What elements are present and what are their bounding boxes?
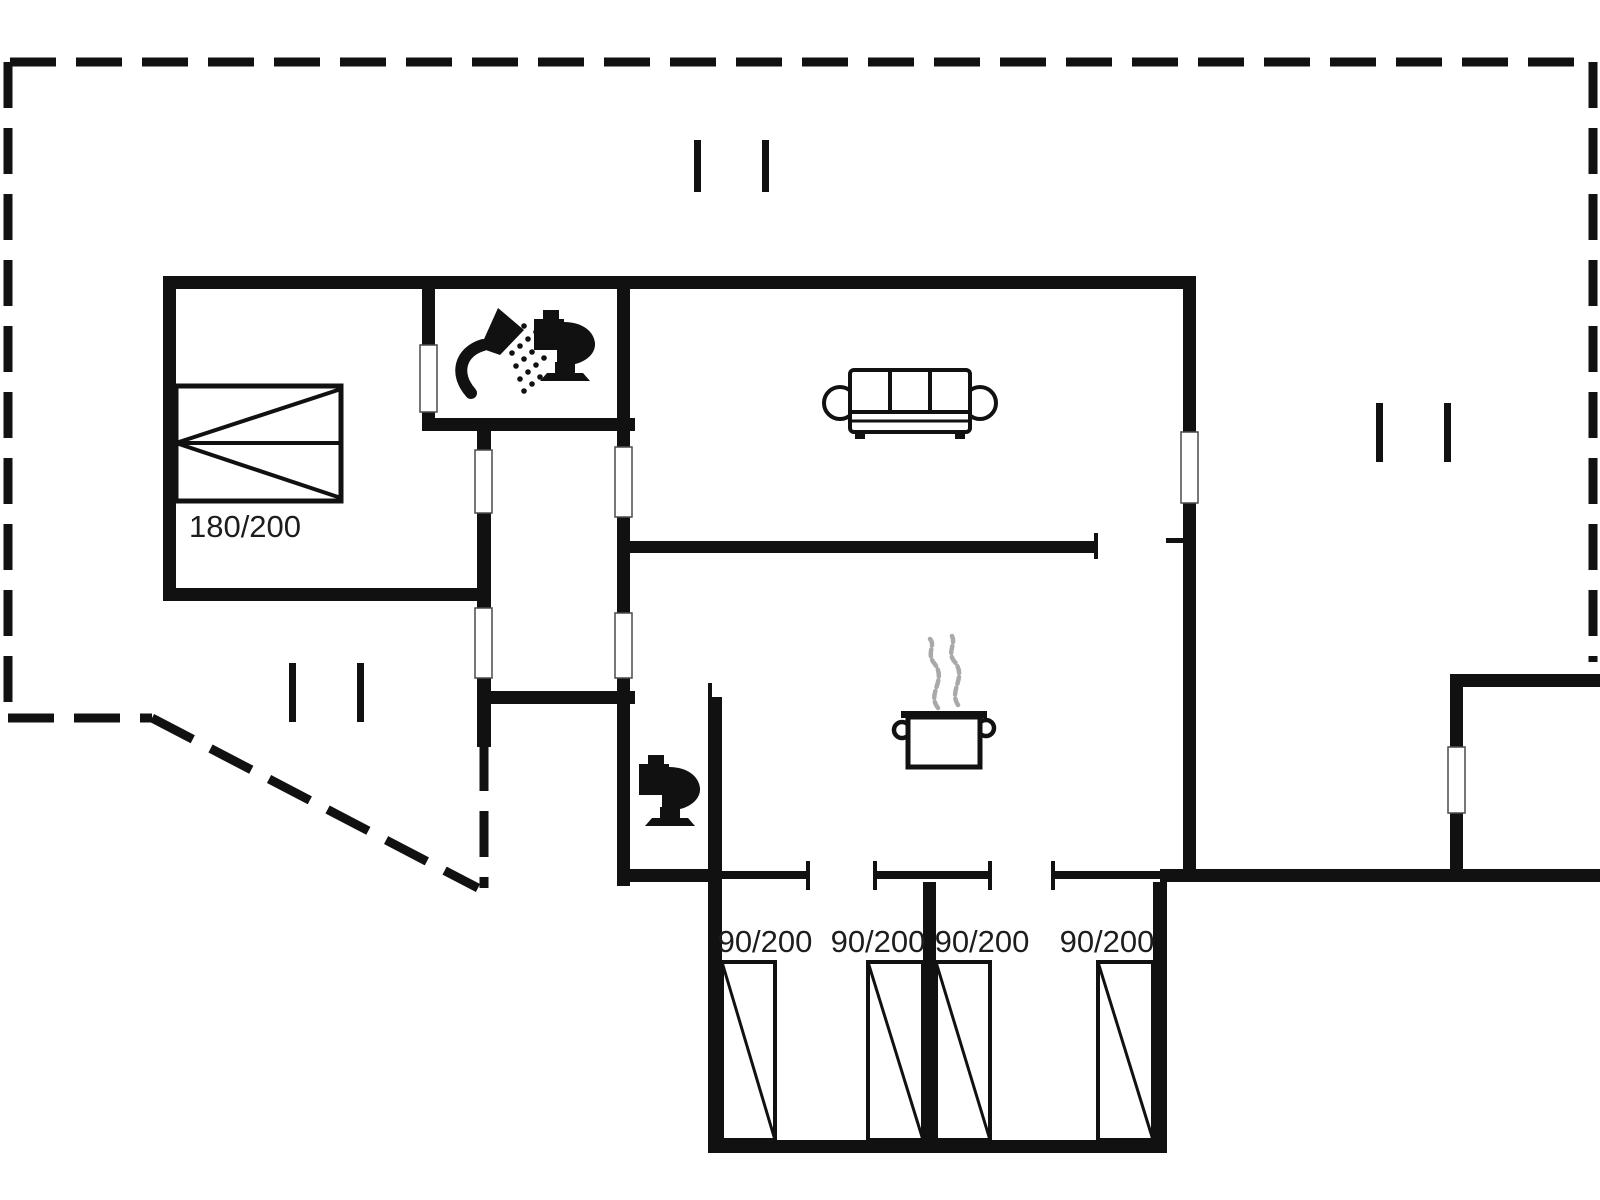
south-wall-thick-east: [1160, 869, 1600, 882]
bedroom-door: [475, 450, 492, 513]
opening-mark-left-1: [289, 663, 296, 722]
annex-window: [1448, 747, 1465, 813]
boundary-diagonal: [152, 718, 478, 888]
single-bed-size-label-1: 90/200: [718, 924, 813, 959]
single-bed-size-label-2: 90/200: [831, 924, 926, 959]
bathroom-west-wall-upper: [422, 276, 435, 348]
annex-west-wall-lower: [1450, 811, 1463, 871]
single-bed-size-label-4: 90/200: [1060, 924, 1155, 959]
kitchen: [894, 636, 994, 767]
opening-mark-top-1: [694, 140, 701, 192]
bedroom: 180/200: [176, 386, 341, 544]
cooking-pot-icon: [894, 636, 994, 767]
divider-jamb: [1094, 533, 1098, 559]
divider-right-stub: [1166, 538, 1183, 543]
steam-line-1: [930, 639, 939, 708]
double-bed-size-label: 180/200: [189, 509, 301, 544]
annex-west-wall-upper: [1450, 687, 1463, 749]
wall-right-upper: [1183, 276, 1196, 434]
living-room: [624, 370, 1198, 559]
hall-east-wall-b: [617, 514, 630, 615]
opening-mark-top-2: [762, 140, 769, 192]
annex-top-wall: [1450, 674, 1600, 687]
bunk-door2-jamb-right: [1051, 861, 1055, 890]
hall-east-wall-a: [617, 276, 630, 447]
opening-mark-left-2: [357, 663, 364, 722]
south-wall-thick-west: [617, 869, 722, 882]
wc-door-jamb: [708, 683, 712, 697]
living-kitchen-divider-wall: [624, 541, 1097, 553]
steam-line-2: [951, 636, 959, 705]
shower-icon: [461, 308, 547, 394]
bunk-room-east-wall: [1153, 882, 1167, 1144]
hall-west-wall-a: [477, 425, 491, 450]
bunk-top-wall-a: [722, 871, 810, 879]
bathroom-bottom-wall: [422, 418, 635, 431]
single-bed-icon: [722, 962, 775, 1140]
wc-room: [639, 683, 722, 1153]
hall-west-wall-c: [477, 675, 491, 747]
hall-west-wall-b: [477, 513, 491, 611]
sofa-icon: [824, 370, 996, 439]
toilet-icon: [639, 755, 700, 826]
bunk-door1-jamb-right: [873, 861, 877, 890]
living-room-window: [1181, 432, 1198, 503]
single-bed-icon: [1098, 962, 1153, 1140]
single-bed-size-label-3: 90/200: [935, 924, 1030, 959]
single-bed-icon: [936, 962, 990, 1140]
entrance-door: [475, 608, 492, 678]
bunk-door1-jamb-left: [806, 861, 810, 890]
bunk-top-wall-c: [1055, 871, 1160, 879]
bunk-top-wall-b: [877, 871, 990, 879]
toilet-icon: [534, 310, 595, 381]
bunk-door2-jamb-left: [988, 861, 992, 890]
annex: [1448, 674, 1600, 871]
wall-top: [163, 276, 1196, 289]
hall-east-wall-c: [617, 676, 630, 886]
floor-plan: 180/200: [0, 0, 1600, 1200]
kitchen-door: [615, 613, 632, 678]
opening-mark-right-2: [1444, 403, 1451, 462]
bunk-room: 90/200 90/200 90/200 90/200: [708, 882, 1167, 1153]
living-room-door: [615, 447, 632, 517]
opening-mark-right-1: [1376, 403, 1383, 462]
floor-plan-page: 180/200: [0, 0, 1600, 1200]
porch-wall: [477, 691, 635, 704]
single-bed-icon: [868, 962, 923, 1140]
wall-bedroom-bottom: [163, 588, 491, 601]
bathroom-door: [420, 345, 437, 412]
wall-right-lower: [1183, 501, 1196, 882]
double-bed-icon: [176, 386, 341, 501]
bathroom: [420, 276, 635, 431]
